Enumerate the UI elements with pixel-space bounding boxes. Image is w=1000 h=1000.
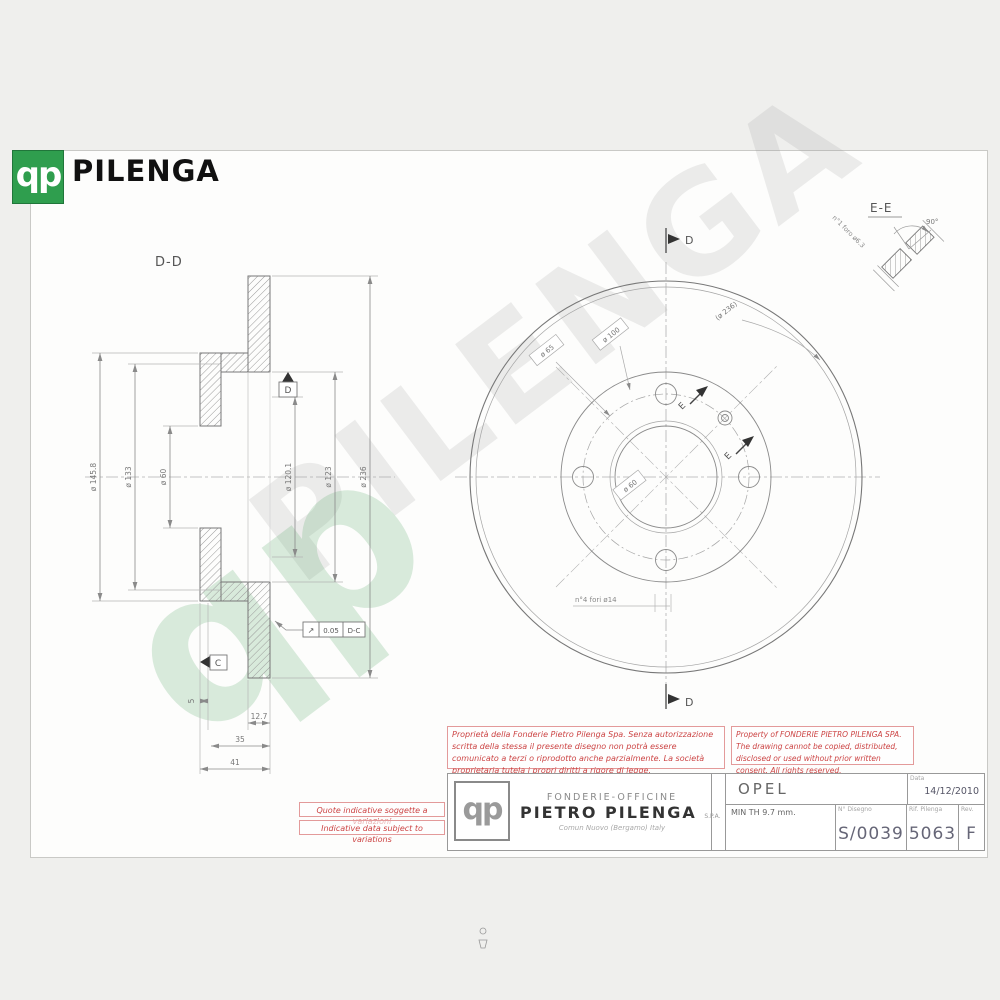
property-notice-italian: Proprietà della Fonderie Pietro Pilenga … <box>447 726 725 769</box>
customer-name: OPEL <box>726 774 908 804</box>
date-label: Data <box>910 775 924 782</box>
revision-label: Rev. <box>961 806 974 813</box>
dim-label-small: 5 <box>187 698 196 703</box>
holes-note: n°4 fori ø14 <box>573 594 671 612</box>
dim-label-total-height: 41 <box>230 758 240 767</box>
section-dd-label: D-D <box>155 255 183 270</box>
min-thickness-note: MIN TH 9.7 mm. <box>726 805 835 850</box>
pilenga-ref-cell: Rif. Pilenga 5063 <box>906 805 958 850</box>
revision-value: F <box>966 824 977 850</box>
runout-value: 0.05 <box>323 627 339 635</box>
countersink-angle-label: 90° <box>926 218 938 226</box>
pilenga-ref-value: 5063 <box>909 824 956 850</box>
date-cell: Data 14/12/2010 <box>908 774 984 804</box>
brand-wordmark: PILENGA <box>72 154 220 188</box>
datum-c-label: C <box>215 659 221 669</box>
detail-ee-label: E-E <box>870 201 893 215</box>
title-block: qp FONDERIE-OFFICINE PIETRO PILENGA S.P.… <box>447 773 985 851</box>
dim-label-band-inner: ø 123 <box>324 466 333 488</box>
datum-d-label: D <box>285 386 292 396</box>
runout-symbol: ↗ <box>308 626 315 635</box>
section-dd-view: D-D <box>85 255 395 774</box>
hat-wall-top <box>221 353 248 372</box>
date-value: 14/12/2010 <box>924 786 979 797</box>
company-logo: qp <box>454 781 510 841</box>
brand-header: qp PILENGA <box>12 150 220 204</box>
dim-label-thickness: 12.7 <box>251 712 268 721</box>
section-cut-d-top: D <box>666 228 693 253</box>
projection-symbol-cell <box>712 774 726 850</box>
pilenga-logo: qp <box>12 150 64 204</box>
drawing-number-cell: N° Disegno S/0039 <box>835 805 906 850</box>
pilenga-ref-label: Rif. Pilenga <box>909 806 942 813</box>
dim-label-register: ø 120.1 <box>284 463 293 492</box>
detail-ee-view: E-E 90° n°1 foro ø6.3 <box>831 201 944 291</box>
dim-label-hat-height: 35 <box>235 735 245 744</box>
company-name: PIETRO PILENGA <box>520 803 697 822</box>
variation-note-italian: Quote indicative soggette a variazioni <box>299 802 445 817</box>
drawing-number-value: S/0039 <box>838 824 904 850</box>
front-view: D D E E ø 65 ø 100 <box>455 228 880 709</box>
section-marker-d-bottom: D <box>685 696 693 709</box>
drawing-page: { "brand": {"monogram": "qp", "name": "P… <box>0 0 1000 1000</box>
holes-note-text: n°4 fori ø14 <box>575 596 617 604</box>
dim-label-bore: ø 60 <box>159 469 168 486</box>
drawing-number-label: N° Disegno <box>838 806 872 813</box>
title-block-company: qp FONDERIE-OFFICINE PIETRO PILENGA S.P.… <box>448 774 712 850</box>
section-marker-e1: E <box>677 401 688 412</box>
company-suffix: S.P.A. <box>704 813 720 820</box>
runout-datum: D-C <box>348 627 361 635</box>
company-line1: FONDERIE-OFFICINE <box>520 792 704 803</box>
runout-tolerance-frame: ↗ 0.05 D-C <box>275 621 365 637</box>
section-cut-d-bottom: D <box>666 684 693 709</box>
braking-band-bottom <box>248 582 270 678</box>
detail-ee-note: n°1 foro ø6.3 <box>831 214 867 250</box>
dim-label-hat: ø 133 <box>124 466 133 488</box>
company-city: Comun Nuovo (Bergamo) Italy <box>520 824 704 832</box>
revision-cell: Rev. F <box>958 805 984 850</box>
braking-band-top <box>248 276 270 372</box>
first-angle-projection-icon <box>478 924 488 954</box>
variation-note-english: Indicative data subject to variations <box>299 820 445 835</box>
dim-label-hat-outer: ø 145.8 <box>89 463 98 492</box>
outer-ref-label: (ø 236) <box>714 300 739 322</box>
hat-wall-bottom <box>221 582 248 601</box>
section-marker-d-top: D <box>685 234 693 247</box>
dim-label-outer: ø 236 <box>359 466 368 488</box>
datum-c-flag: C <box>200 655 227 670</box>
section-marker-e2: E <box>723 451 734 462</box>
property-notice-english: Property of FONDERIE PIETRO PILENGA SPA.… <box>731 726 914 765</box>
datum-d-flag: D <box>279 372 297 397</box>
